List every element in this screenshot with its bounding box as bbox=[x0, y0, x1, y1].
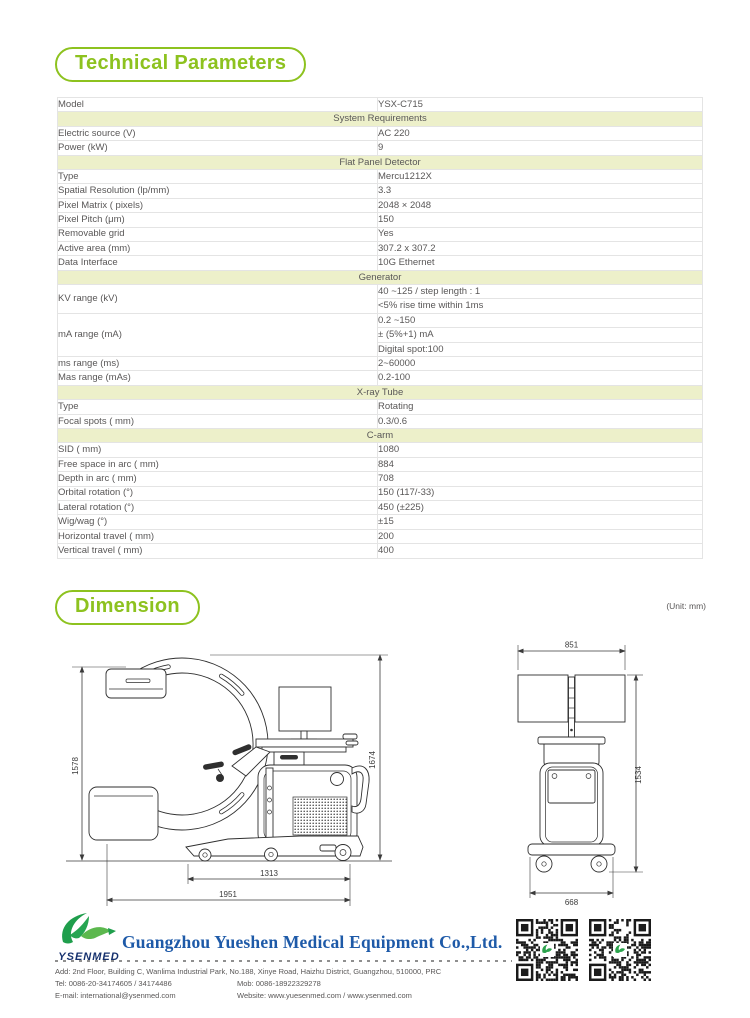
spec-value: 2048 × 2048 bbox=[378, 198, 703, 212]
detector-box bbox=[106, 669, 166, 698]
spec-value: AC 220 bbox=[378, 126, 703, 140]
email-text: E-mail: international@ysenmed.com bbox=[55, 991, 176, 1000]
spec-value: 0.2 ~150 bbox=[378, 313, 703, 327]
knob bbox=[216, 774, 224, 782]
spec-value: 150 bbox=[378, 213, 703, 227]
spec-value: 450 (±225) bbox=[378, 500, 703, 514]
spec-row: Data Interface10G Ethernet bbox=[58, 256, 703, 270]
spec-row: Lateral rotation (°)450 (±225) bbox=[58, 500, 703, 514]
spec-value: 9 bbox=[378, 141, 703, 155]
spec-label: Wig/wag (°) bbox=[58, 515, 378, 529]
spec-label: Pixel Matrix ( pixels) bbox=[58, 198, 378, 212]
spec-row: Spatial Resolution (lp/mm)3.3 bbox=[58, 184, 703, 198]
spec-label: Spatial Resolution (lp/mm) bbox=[58, 184, 378, 198]
unit-note: (Unit: mm) bbox=[666, 601, 706, 611]
monitor-cart-front-view-drawing: 851 1534 668 bbox=[480, 630, 720, 920]
qr-code-left bbox=[516, 919, 578, 981]
spec-label: ms range (ms) bbox=[58, 357, 378, 371]
technical-parameters-heading: Technical Parameters bbox=[55, 47, 306, 82]
spec-value: Rotating bbox=[378, 400, 703, 414]
spec-label: Mas range (mAs) bbox=[58, 371, 378, 385]
spec-value: 150 (117/-33) bbox=[378, 486, 703, 500]
spec-row: Electric source (V)AC 220 bbox=[58, 126, 703, 140]
spec-value: 0.3/0.6 bbox=[378, 414, 703, 428]
steering-handle bbox=[203, 761, 225, 770]
spec-section-row: Flat Panel Detector bbox=[58, 155, 703, 169]
spec-value: <5% rise time within 1ms bbox=[378, 299, 703, 313]
spec-value: 884 bbox=[378, 457, 703, 471]
spec-label: KV range (kV) bbox=[58, 285, 378, 314]
spec-row: ms range (ms)2~60000 bbox=[58, 357, 703, 371]
dimension-heading: Dimension bbox=[55, 590, 200, 625]
spec-label: mA range (mA) bbox=[58, 313, 378, 356]
dim-total-width: 1951 bbox=[219, 890, 237, 899]
spec-value: ±15 bbox=[378, 515, 703, 529]
spec-label: Type bbox=[58, 169, 378, 183]
wheel bbox=[536, 856, 552, 872]
spec-label: SID ( mm) bbox=[58, 443, 378, 457]
company-name: Guangzhou Yueshen Medical Equipment Co.,… bbox=[122, 932, 502, 953]
dim-left-height: 1578 bbox=[71, 757, 80, 775]
spec-value: YSX-C715 bbox=[378, 98, 703, 112]
spec-value: 40 ~125 / step length : 1 bbox=[378, 285, 703, 299]
spec-value: ± (5%+1) mA bbox=[378, 328, 703, 342]
spec-row: TypeMercu1212X bbox=[58, 169, 703, 183]
spec-label: Removable grid bbox=[58, 227, 378, 241]
website-text: Website: www.yuesenmed.com / www.ysenmed… bbox=[237, 991, 412, 1000]
spec-value: 2~60000 bbox=[378, 357, 703, 371]
spec-row: mA range (mA)0.2 ~150 bbox=[58, 313, 703, 327]
spec-section-label: C-arm bbox=[58, 428, 703, 442]
spec-row: Active area (mm)307.2 x 307.2 bbox=[58, 241, 703, 255]
spec-section-row: C-arm bbox=[58, 428, 703, 442]
spec-row: Depth in arc ( mm)708 bbox=[58, 472, 703, 486]
spec-value: 1080 bbox=[378, 443, 703, 457]
monitor-right bbox=[575, 675, 625, 722]
spec-label: Vertical travel ( mm) bbox=[58, 544, 378, 558]
monitor-left bbox=[518, 675, 568, 722]
dim-bottom-width: 668 bbox=[565, 898, 579, 907]
dim-right-height: 1674 bbox=[368, 751, 377, 769]
spec-value: 3.3 bbox=[378, 184, 703, 198]
spec-table-body: ModelYSX-C715System RequirementsElectric… bbox=[58, 98, 703, 559]
spec-value: 0.2-100 bbox=[378, 371, 703, 385]
spec-value: Mercu1212X bbox=[378, 169, 703, 183]
spec-label: Depth in arc ( mm) bbox=[58, 472, 378, 486]
wheel bbox=[199, 849, 211, 861]
spec-label: Pixel Pitch (μm) bbox=[58, 213, 378, 227]
spec-row: Horizontal travel ( mm)200 bbox=[58, 529, 703, 543]
spec-label: Type bbox=[58, 400, 378, 414]
monitor bbox=[279, 687, 331, 731]
spec-value: 400 bbox=[378, 544, 703, 558]
ventilation-grille bbox=[293, 797, 347, 835]
dim-top-width: 851 bbox=[565, 641, 579, 650]
spec-row: Pixel Pitch (μm)150 bbox=[58, 213, 703, 227]
wheel bbox=[591, 856, 607, 872]
spec-label: Model bbox=[58, 98, 378, 112]
spec-section-label: X-ray Tube bbox=[58, 385, 703, 399]
cart-base bbox=[528, 844, 615, 855]
dashed-separator bbox=[55, 960, 512, 962]
spec-value: 200 bbox=[378, 529, 703, 543]
spec-row: ModelYSX-C715 bbox=[58, 98, 703, 112]
spec-value: Digital spot:100 bbox=[378, 342, 703, 356]
spec-label: Active area (mm) bbox=[58, 241, 378, 255]
mob-text: Mob: 0086-18922329278 bbox=[237, 979, 321, 988]
qr-code-right bbox=[589, 919, 651, 981]
tel-text: Tel: 0086-20-34174605 / 34174486 bbox=[55, 979, 172, 988]
spec-label: Orbital rotation (°) bbox=[58, 486, 378, 500]
spec-section-label: Flat Panel Detector bbox=[58, 155, 703, 169]
spec-row: Free space in arc ( mm)884 bbox=[58, 457, 703, 471]
spec-row: Mas range (mAs)0.2-100 bbox=[58, 371, 703, 385]
spec-value: 10G Ethernet bbox=[378, 256, 703, 270]
spec-value: Yes bbox=[378, 227, 703, 241]
spec-row: Pixel Matrix ( pixels)2048 × 2048 bbox=[58, 198, 703, 212]
spec-section-label: System Requirements bbox=[58, 112, 703, 126]
cart-body bbox=[186, 687, 369, 861]
spec-row: Removable gridYes bbox=[58, 227, 703, 241]
spec-label: Data Interface bbox=[58, 256, 378, 270]
address-text: Add: 2nd Floor, Building C, Wanlima Indu… bbox=[55, 967, 441, 976]
spec-section-label: Generator bbox=[58, 270, 703, 284]
spec-section-row: System Requirements bbox=[58, 112, 703, 126]
spec-label: Lateral rotation (°) bbox=[58, 500, 378, 514]
ysenmed-bird-logo bbox=[53, 911, 117, 953]
spec-label: Free space in arc ( mm) bbox=[58, 457, 378, 471]
xray-tube-box bbox=[89, 787, 158, 840]
spec-value: 307.2 x 307.2 bbox=[378, 241, 703, 255]
spec-row: Vertical travel ( mm)400 bbox=[58, 544, 703, 558]
c-arm-side-view-drawing: 1578 1674 1313 1951 bbox=[60, 648, 420, 918]
spec-section-row: Generator bbox=[58, 270, 703, 284]
spec-table: ModelYSX-C715System RequirementsElectric… bbox=[57, 97, 703, 559]
spec-row: SID ( mm)1080 bbox=[58, 443, 703, 457]
control-panel bbox=[548, 770, 595, 803]
spec-row: Orbital rotation (°)150 (117/-33) bbox=[58, 486, 703, 500]
wheel bbox=[265, 848, 278, 861]
spec-row: Power (kW)9 bbox=[58, 141, 703, 155]
spec-label: Horizontal travel ( mm) bbox=[58, 529, 378, 543]
monitor-cart bbox=[518, 675, 625, 872]
spec-row: KV range (kV)40 ~125 / step length : 1 bbox=[58, 285, 703, 299]
dim-right-height: 1534 bbox=[634, 766, 643, 784]
spec-row: Wig/wag (°)±15 bbox=[58, 515, 703, 529]
spec-label: Focal spots ( mm) bbox=[58, 414, 378, 428]
wheel bbox=[335, 845, 351, 861]
spec-section-row: X-ray Tube bbox=[58, 385, 703, 399]
spec-value: 708 bbox=[378, 472, 703, 486]
spec-row: Focal spots ( mm)0.3/0.6 bbox=[58, 414, 703, 428]
spec-row: TypeRotating bbox=[58, 400, 703, 414]
dim-inner-width: 1313 bbox=[260, 869, 278, 878]
spec-label: Electric source (V) bbox=[58, 126, 378, 140]
spec-label: Power (kW) bbox=[58, 141, 378, 155]
